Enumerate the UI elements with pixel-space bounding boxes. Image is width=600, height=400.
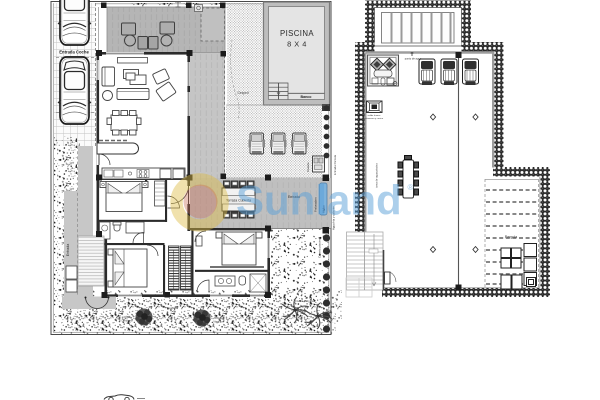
svg-text:Caseta: Caseta xyxy=(306,162,310,172)
svg-text:Sunland: Sunland xyxy=(236,177,402,224)
svg-text:salida humos: salida humos xyxy=(368,115,382,117)
svg-text:Frutal: Frutal xyxy=(124,315,131,319)
svg-text:PISCINA: PISCINA xyxy=(280,29,314,38)
svg-text:chimenea y cocina: chimenea y cocina xyxy=(365,118,384,120)
svg-text:8 X 4: 8 X 4 xyxy=(287,40,307,49)
svg-text:Naranjo: Naranjo xyxy=(213,320,223,324)
svg-text:Pergola: Pergola xyxy=(505,235,517,239)
svg-text:®: ® xyxy=(408,183,414,192)
svg-text:Cesped: Cesped xyxy=(168,306,177,310)
svg-text:Entrada: Entrada xyxy=(66,244,70,257)
svg-text:Banco: Banco xyxy=(301,95,313,99)
svg-text:Limonero: Limonero xyxy=(122,319,133,323)
svg-text:Caseta piscina: Caseta piscina xyxy=(318,238,322,258)
svg-text:Entrada Coche: Entrada Coche xyxy=(59,50,89,55)
svg-text:Cesped: Cesped xyxy=(238,91,249,95)
svg-text:Frutal: Frutal xyxy=(215,316,222,320)
svg-text:Entrada Parcela: Entrada Parcela xyxy=(333,154,337,175)
svg-text:Frutale Palmeras: Frutale Palmeras xyxy=(295,299,315,303)
